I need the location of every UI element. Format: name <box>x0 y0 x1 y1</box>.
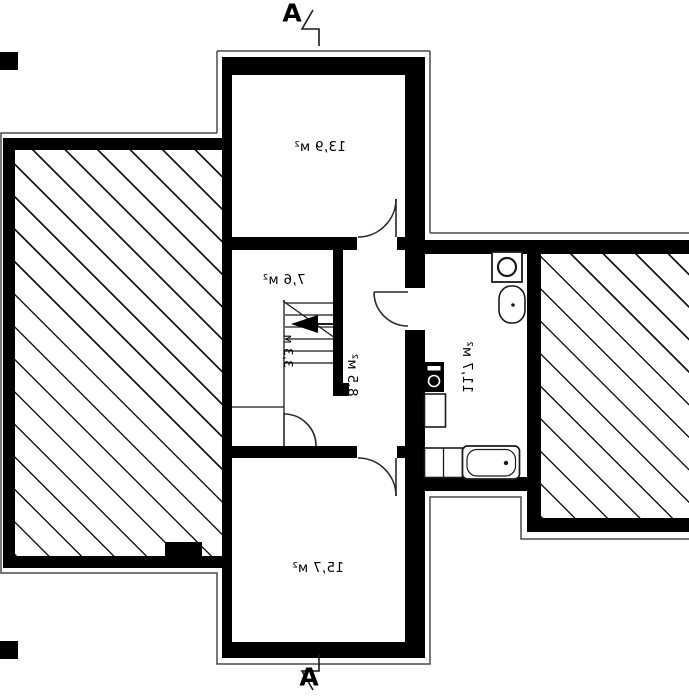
floor-plan: A A 13,9 м² 7,6 м² 15,7 м² 8,5 м² 11,7 м… <box>0 0 689 700</box>
room-label-11-7: 11,7 м² <box>441 359 493 375</box>
room-label-8-5: 8,5 м² <box>330 367 373 383</box>
door-room-13-9 <box>358 199 396 237</box>
room-label-7-6: 7,6 м² <box>262 272 305 288</box>
plan-linework <box>0 0 689 700</box>
washbasin-icon <box>499 286 525 323</box>
door-bathroom <box>374 292 408 326</box>
door-room-15-7 <box>358 458 396 496</box>
section-line-top <box>302 10 319 46</box>
section-marker-top: A <box>282 0 301 28</box>
door-under-stairs <box>284 412 316 446</box>
cabinet-double-icon <box>425 448 463 478</box>
washing-machine-icon <box>492 252 522 282</box>
cabinet-icon <box>425 394 446 427</box>
room-label-15-7: 15,7 м² <box>292 560 344 576</box>
stair-direction-arrow-icon <box>291 315 318 333</box>
stair-length-label: 3,3 м <box>271 344 304 358</box>
bathtub-icon <box>463 446 520 479</box>
room-label-13-9: 13,9 м² <box>294 139 346 155</box>
section-marker-bottom: A <box>299 663 318 692</box>
